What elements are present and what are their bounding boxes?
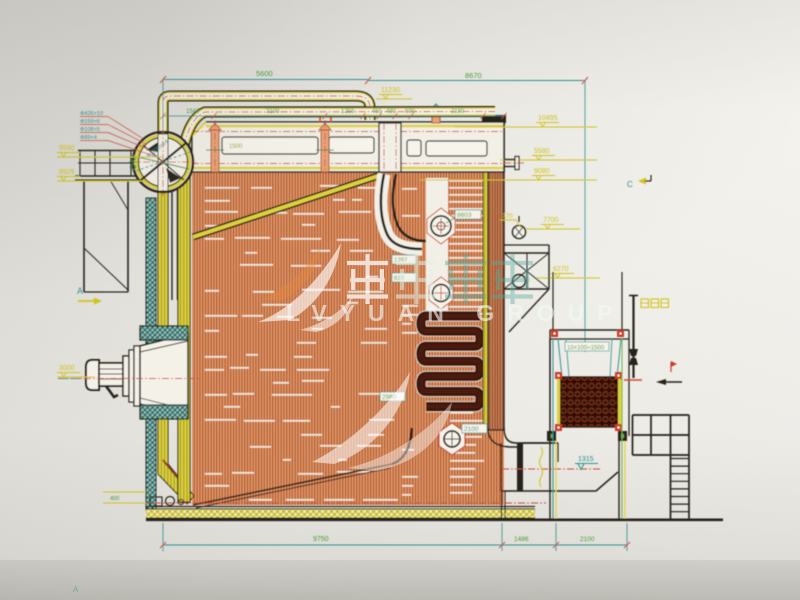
svg-text:LVYUAN GROUP: LVYUAN GROUP	[286, 300, 626, 326]
svg-text:5580: 5580	[534, 148, 550, 155]
svg-text:2100: 2100	[580, 536, 595, 543]
svg-text:10495: 10495	[538, 115, 558, 122]
svg-text:2100: 2100	[464, 426, 479, 433]
svg-text:1486: 1486	[514, 536, 529, 543]
svg-text:1315: 1315	[578, 456, 594, 463]
svg-text:7700: 7700	[543, 217, 559, 224]
svg-text:10×100=1500: 10×100=1500	[567, 346, 605, 352]
svg-text:6270: 6270	[553, 266, 569, 273]
svg-text:770: 770	[502, 213, 513, 220]
svg-text:C: C	[627, 180, 633, 189]
svg-text:3000: 3000	[59, 365, 75, 372]
svg-text:400: 400	[110, 496, 119, 502]
svg-text:8603: 8603	[457, 212, 472, 219]
svg-text:9750: 9750	[313, 536, 329, 543]
svg-text:9080: 9080	[534, 168, 550, 175]
